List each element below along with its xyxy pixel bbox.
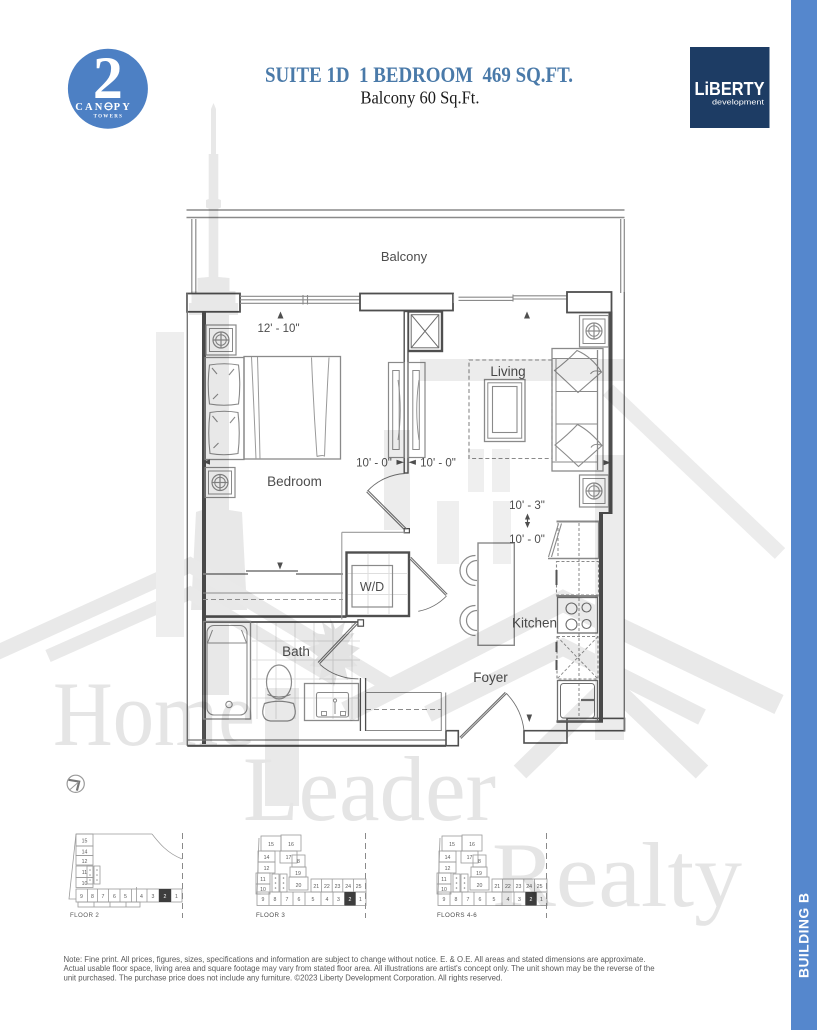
svg-text:10' - 0": 10' - 0" bbox=[420, 458, 456, 470]
svg-text:Leader: Leader bbox=[243, 738, 496, 840]
svg-text:Balcony 60 Sq.Ft.: Balcony 60 Sq.Ft. bbox=[361, 88, 480, 108]
svg-text:Realty: Realty bbox=[492, 824, 742, 926]
svg-text:4: 4 bbox=[140, 894, 143, 900]
svg-text:10' - 0": 10' - 0" bbox=[509, 534, 545, 546]
svg-text:development: development bbox=[712, 98, 765, 107]
svg-text:12' - 10": 12' - 10" bbox=[257, 323, 299, 335]
svg-text:15: 15 bbox=[82, 839, 88, 845]
svg-text:Note: Fine print. All prices,: Note: Fine print. All prices, figures, s… bbox=[64, 955, 646, 964]
svg-text:CAN: CAN bbox=[75, 102, 104, 113]
svg-text:SUITE 1D 1 BEDROOM 469 SQ.FT: SUITE 1D 1 BEDROOM 469 SQ.FT. bbox=[265, 62, 573, 87]
svg-text:Bedroom: Bedroom bbox=[267, 474, 322, 489]
svg-text:PY: PY bbox=[114, 102, 132, 113]
svg-text:TOWERS: TOWERS bbox=[94, 115, 124, 120]
svg-text:LiBERTY: LiBERTY bbox=[695, 79, 765, 99]
svg-text:8: 8 bbox=[91, 894, 94, 900]
svg-text:10' - 3": 10' - 3" bbox=[509, 500, 545, 512]
svg-text:14: 14 bbox=[82, 850, 88, 856]
svg-text:FLOOR 2: FLOOR 2 bbox=[70, 912, 99, 919]
svg-text:7: 7 bbox=[102, 894, 105, 900]
svg-text:W/D: W/D bbox=[360, 580, 384, 594]
svg-text:unit purchased. The purchase p: unit purchased. The purchase price does … bbox=[64, 973, 503, 982]
svg-text:5: 5 bbox=[124, 894, 127, 900]
svg-text:10: 10 bbox=[82, 881, 88, 887]
svg-text:1: 1 bbox=[175, 894, 178, 900]
svg-text:2: 2 bbox=[164, 894, 167, 900]
svg-text:11: 11 bbox=[82, 870, 87, 876]
svg-text:3: 3 bbox=[152, 894, 155, 900]
svg-text:12: 12 bbox=[82, 859, 88, 865]
svg-text:Home: Home bbox=[53, 663, 255, 765]
svg-text:BUILDING B: BUILDING B bbox=[797, 893, 812, 978]
svg-text:Actual usable floor space, liv: Actual usable floor space, living area a… bbox=[64, 964, 655, 973]
svg-text:FLOORS 4-6: FLOORS 4-6 bbox=[437, 912, 477, 919]
svg-text:6: 6 bbox=[113, 894, 116, 900]
svg-text:FLOOR 3: FLOOR 3 bbox=[256, 912, 285, 919]
svg-text:Balcony: Balcony bbox=[381, 249, 428, 264]
svg-text:9: 9 bbox=[80, 894, 83, 900]
